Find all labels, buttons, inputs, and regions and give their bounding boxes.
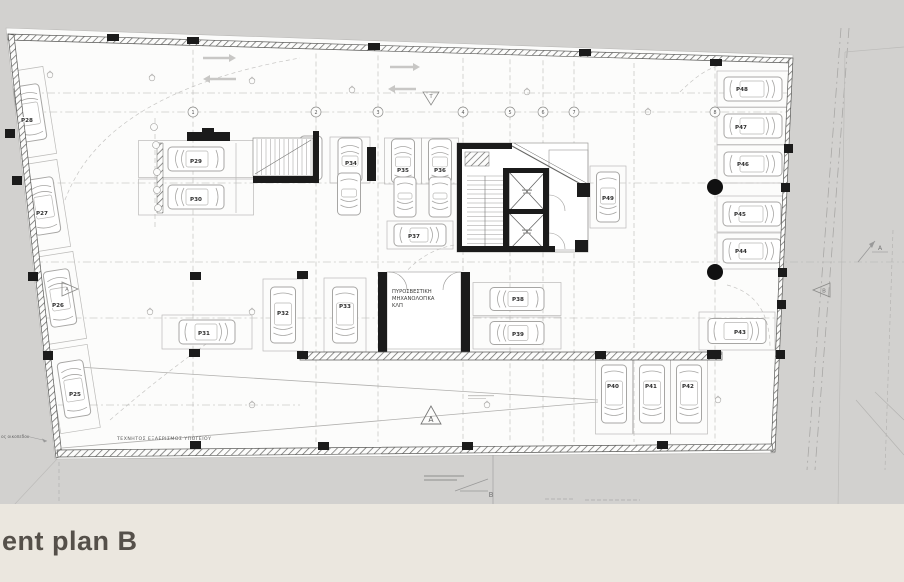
spot-label-P39: P39 [512,332,524,338]
svg-text:P45: P45 [734,212,746,218]
svg-text:P36: P36 [434,168,446,174]
grid-bubble-6: 6 [538,107,548,117]
svg-text:2: 2 [314,110,317,116]
grid-bubble-3: 3 [373,107,383,117]
spot-label-P25: P25 [69,392,81,398]
parking-spot-P37 [387,221,453,249]
car [338,173,361,215]
car [640,365,665,423]
spot-label-P37: P37 [408,234,420,240]
spot-label-P46: P46 [737,162,749,168]
svg-text:P35: P35 [397,168,409,174]
svg-text:6: 6 [541,110,544,116]
svg-text:8: 8 [713,110,716,116]
row-bubble [153,142,160,149]
extra-car [429,177,451,217]
grid-bubble-7: 7 [569,107,579,117]
grid-bubble-4: 4 [458,107,468,117]
svg-text:ΚΛΠ: ΚΛΠ [392,303,403,309]
svg-text:ΜΗΧΑΝΟΛΟΓΙΚΑ: ΜΗΧΑΝΟΛΟΓΙΚΑ [392,296,435,302]
car [723,239,781,263]
car [723,202,781,226]
grid-bubble-5: 5 [505,107,515,117]
spot-label-P28: P28 [21,118,33,124]
svg-text:P43: P43 [734,330,746,336]
spot-label-P35: P35 [397,168,409,174]
grid-bubble-8: 8 [710,107,720,117]
svg-text:ος οικοπεδου: ος οικοπεδου [1,434,30,440]
car [333,287,358,343]
car [429,139,452,183]
svg-text:P31: P31 [198,331,210,337]
svg-text:B: B [489,491,494,499]
row-bubble [151,124,158,131]
car [394,177,416,217]
spot-label-P34: P34 [345,161,357,167]
svg-text:B: B [822,289,826,295]
spot-label-P36: P36 [434,168,446,174]
column-circle [707,179,723,195]
car [724,114,782,138]
section-marker-b: B [813,283,830,297]
car [724,77,782,101]
spot-label-P43: P43 [734,330,746,336]
svg-text:7: 7 [572,110,575,116]
svg-text:1: 1 [191,110,194,116]
spot-label-P33: P33 [339,304,351,310]
elevator-shaft-1 [509,172,545,211]
extra-car [338,173,361,215]
svg-text:P41: P41 [645,384,657,390]
row-bubble [155,205,162,212]
row-bubble [154,187,161,194]
svg-text:P34: P34 [345,161,357,167]
svg-text:P30: P30 [190,197,202,203]
svg-text:P47: P47 [735,125,747,131]
spot-label-P29: P29 [190,159,202,165]
svg-text:A: A [65,287,69,293]
page-title: ent plan B [2,526,138,557]
section-marker-b: B [424,475,494,499]
caption-bar: ent plan B [0,504,904,582]
spot-label-P45: P45 [734,212,746,218]
spot-label-P49: P49 [602,196,614,202]
extra-car [394,177,416,217]
fire-mechanical-room: ΠΥΡΟΣΒΕΣΤΙΚΗΜΗΧΑΝΟΛΟΓΙΚΑΚΛΠ [378,272,470,355]
spot-label-P31: P31 [198,331,210,337]
svg-text:T: T [428,94,433,100]
svg-text:P25: P25 [69,392,81,398]
plan-page: ΠΥΡΟΣΒΕΣΤΙΚΗΜΗΧΑΝΟΛΟΓΙΚΑΚΛΠ12345678P28P2… [0,0,904,582]
svg-text:5: 5 [508,110,511,116]
spot-label-P44: P44 [735,249,747,255]
car [392,139,415,183]
grid-bubble-1: 1 [188,107,198,117]
elevator-shaft-2 [509,213,545,250]
svg-text:P26: P26 [52,303,64,309]
svg-text:P33: P33 [339,304,351,310]
spot-label-P38: P38 [512,297,524,303]
spot-label-P42: P42 [682,384,694,390]
car [724,152,782,176]
svg-text:ΤΕΧΝΗΤΟΣ ΕΞΑΕΡΙΣΜΟΣ ΥΠΟΓΕΙΟΥ: ΤΕΧΝΗΤΟΣ ΕΞΑΕΡΙΣΜΟΣ ΥΠΟΓΕΙΟΥ [116,436,211,442]
spot-label-P27: P27 [36,211,48,217]
svg-text:P49: P49 [602,196,614,202]
svg-text:ΠΥΡΟΣΒΕΣΤΙΚΗ: ΠΥΡΟΣΒΕΣΤΙΚΗ [392,289,432,295]
spot-label-P40: P40 [607,384,619,390]
row-bubble [154,169,161,176]
floor-plan-drawing: ΠΥΡΟΣΒΕΣΤΙΚΗΜΗΧΑΝΟΛΟΓΙΚΑΚΛΠ12345678P28P2… [0,0,904,510]
column-circle [707,264,723,280]
svg-text:P48: P48 [736,87,748,93]
grid-bubble-2: 2 [311,107,321,117]
svg-text:P40: P40 [607,384,619,390]
spot-label-P32: P32 [277,311,289,317]
svg-text:3: 3 [376,110,379,116]
car [429,177,451,217]
spot-label-P48: P48 [736,87,748,93]
svg-text:P44: P44 [735,249,747,255]
svg-text:A: A [878,245,883,252]
spot-label-P26: P26 [52,303,64,309]
car [394,224,446,246]
car [677,365,702,423]
spot-label-P30: P30 [190,197,202,203]
core [457,143,590,252]
spot-label-P47: P47 [735,125,747,131]
section-marker-a: A [858,241,888,262]
svg-text:P42: P42 [682,384,694,390]
svg-text:P38: P38 [512,297,524,303]
car [602,365,627,423]
svg-text:P29: P29 [190,159,202,165]
spot-label-P41: P41 [645,384,657,390]
svg-text:P39: P39 [512,332,524,338]
svg-text:P28: P28 [21,118,33,124]
svg-text:P27: P27 [36,211,48,217]
svg-text:P32: P32 [277,311,289,317]
svg-text:4: 4 [461,110,464,116]
svg-text:A: A [428,415,434,424]
svg-text:P37: P37 [408,234,420,240]
svg-text:P46: P46 [737,162,749,168]
